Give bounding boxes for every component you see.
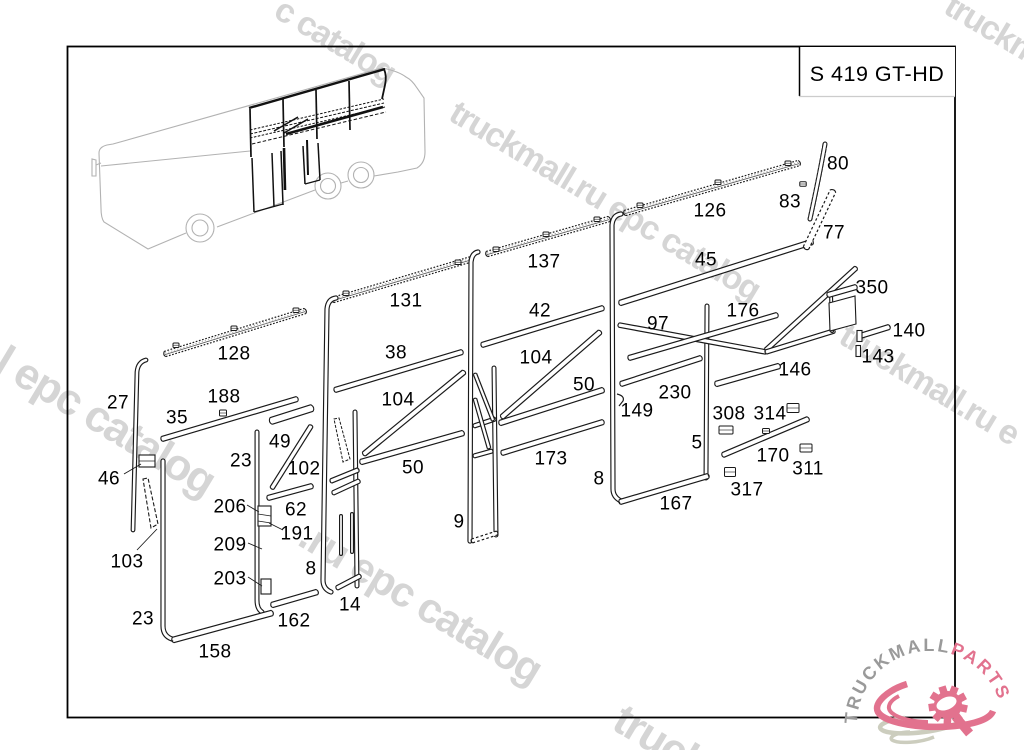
svg-text:311: 311 (792, 459, 824, 480)
svg-text:149: 149 (621, 401, 654, 422)
svg-text:162: 162 (278, 611, 311, 632)
svg-text:173: 173 (535, 449, 568, 470)
svg-text:5: 5 (692, 433, 703, 454)
svg-text:230: 230 (659, 383, 692, 404)
svg-text:83: 83 (779, 192, 801, 213)
svg-text:23: 23 (132, 609, 154, 630)
svg-text:97: 97 (647, 314, 669, 335)
svg-text:203: 203 (214, 569, 247, 590)
svg-text:104: 104 (382, 390, 415, 411)
svg-text:143: 143 (862, 347, 895, 368)
svg-text:8: 8 (594, 469, 605, 490)
svg-text:131: 131 (390, 291, 423, 312)
svg-text:23: 23 (230, 451, 252, 472)
svg-text:167: 167 (660, 494, 693, 515)
svg-text:9: 9 (454, 512, 465, 533)
svg-text:126: 126 (694, 201, 727, 222)
svg-text:50: 50 (573, 375, 595, 396)
svg-text:14: 14 (339, 595, 361, 616)
svg-text:209: 209 (214, 535, 247, 556)
svg-text:50: 50 (402, 458, 424, 479)
svg-text:46: 46 (98, 469, 120, 490)
svg-text:49: 49 (269, 432, 291, 453)
svg-text:308: 308 (713, 404, 746, 425)
svg-text:206: 206 (214, 497, 247, 518)
svg-text:140: 140 (893, 321, 926, 342)
svg-text:35: 35 (166, 408, 188, 429)
svg-text:158: 158 (199, 642, 232, 663)
svg-text:45: 45 (695, 250, 717, 271)
svg-text:80: 80 (827, 154, 849, 175)
svg-text:S 419 GT-HD: S 419 GT-HD (810, 62, 945, 86)
svg-text:188: 188 (208, 387, 241, 408)
svg-text:146: 146 (779, 360, 812, 381)
svg-text:128: 128 (218, 344, 251, 365)
svg-text:314: 314 (754, 404, 787, 425)
svg-text:191: 191 (281, 524, 314, 545)
svg-text:350: 350 (856, 278, 889, 299)
svg-text:104: 104 (520, 348, 553, 369)
svg-text:102: 102 (288, 459, 321, 480)
svg-text:137: 137 (528, 252, 561, 273)
svg-text:38: 38 (385, 343, 407, 364)
svg-text:42: 42 (529, 301, 551, 322)
svg-text:62: 62 (285, 500, 307, 521)
svg-text:77: 77 (823, 223, 845, 244)
svg-text:27: 27 (107, 393, 129, 414)
svg-text:103: 103 (111, 552, 144, 573)
svg-text:8: 8 (306, 559, 317, 580)
svg-text:317: 317 (731, 480, 764, 501)
svg-text:176: 176 (727, 301, 760, 322)
svg-text:170: 170 (757, 446, 790, 467)
